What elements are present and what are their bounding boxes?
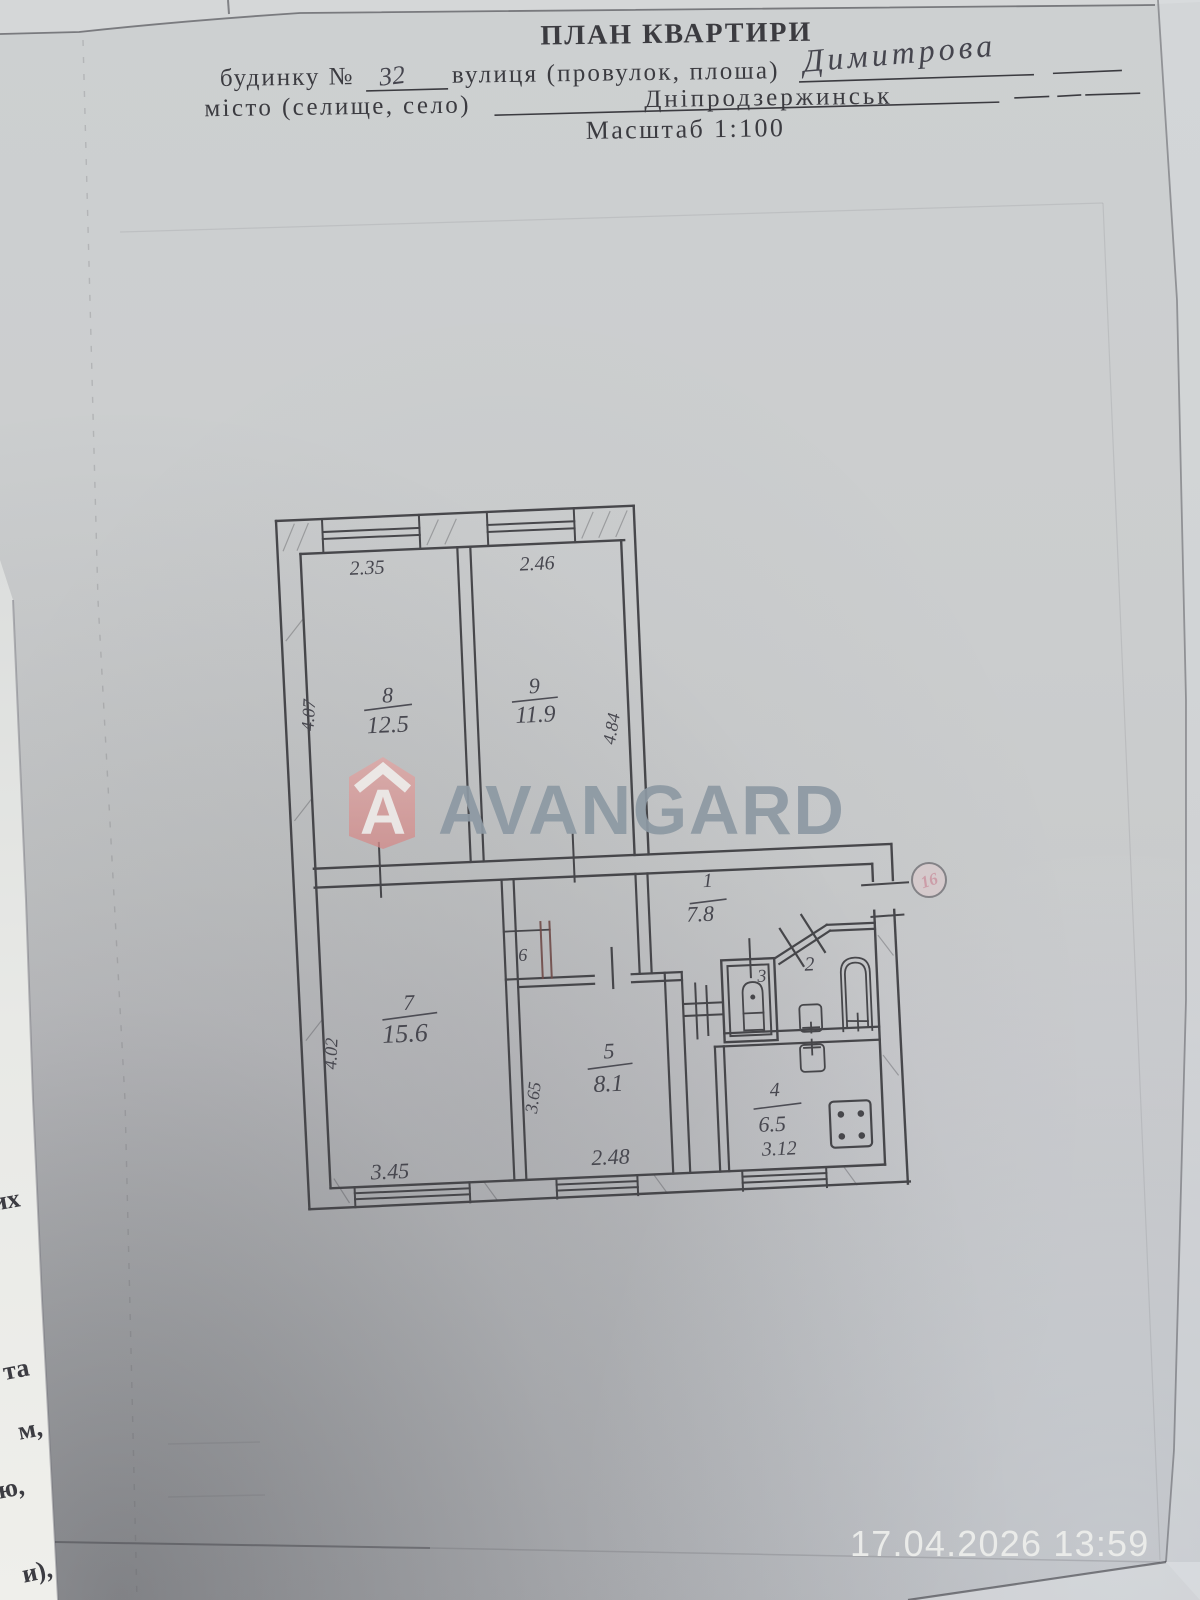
svg-text:2: 2	[804, 953, 815, 975]
svg-text:5: 5	[603, 1038, 615, 1063]
svg-text:A: A	[360, 776, 406, 848]
svg-text:Масштаб 1:100: Масштаб 1:100	[585, 113, 785, 145]
svg-text:7.8: 7.8	[686, 901, 715, 927]
svg-text:2.35: 2.35	[349, 556, 385, 579]
svg-text:ПЛАН КВАРТИРИ: ПЛАН КВАРТИРИ	[540, 17, 812, 52]
svg-text:7: 7	[403, 990, 416, 1015]
svg-text:12.5: 12.5	[366, 712, 409, 740]
svg-text:3.12: 3.12	[760, 1137, 797, 1161]
svg-text:6.5: 6.5	[758, 1111, 787, 1137]
svg-text:1: 1	[702, 870, 713, 892]
svg-text:15.6: 15.6	[382, 1018, 429, 1049]
svg-text:місто (селище, село): місто (селище, село)	[204, 92, 471, 123]
svg-text:9: 9	[528, 673, 540, 698]
svg-text:и),: и),	[19, 1554, 55, 1589]
svg-text:та: та	[0, 1353, 31, 1386]
svg-text:2.46: 2.46	[519, 552, 555, 575]
svg-text:AVANGARD: AVANGARD	[438, 771, 846, 849]
svg-text:8.1: 8.1	[593, 1071, 624, 1098]
svg-text:17.04.2026 13:59: 17.04.2026 13:59	[850, 1523, 1149, 1564]
svg-text:будинку №: будинку №	[220, 63, 355, 92]
svg-text:2.48: 2.48	[591, 1143, 631, 1170]
svg-text:8: 8	[382, 682, 394, 707]
svg-text:4.07: 4.07	[297, 698, 319, 732]
svg-text:11.9: 11.9	[515, 701, 556, 729]
svg-text:32: 32	[376, 60, 406, 92]
svg-text:4.02: 4.02	[320, 1037, 341, 1069]
svg-text:3.45: 3.45	[369, 1158, 410, 1185]
svg-text:4: 4	[769, 1079, 780, 1101]
svg-text:6: 6	[518, 945, 528, 965]
svg-text:3.65: 3.65	[521, 1081, 545, 1116]
svg-text:Дніпродзержинськ: Дніпродзержинськ	[644, 83, 893, 113]
svg-text:3: 3	[756, 965, 767, 985]
